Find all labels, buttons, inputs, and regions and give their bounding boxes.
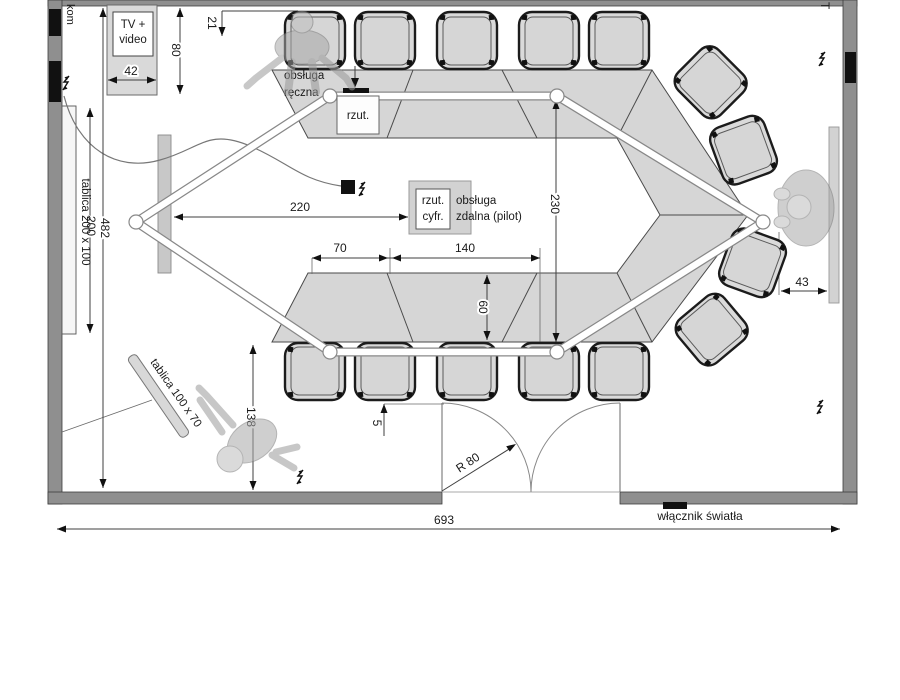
door-swing-arc bbox=[442, 403, 531, 492]
power-bolt-icon bbox=[359, 182, 365, 196]
obsluga-zdalna-line2: zdalna (pilot) bbox=[456, 211, 522, 223]
door-radius-label: R 80 bbox=[453, 450, 482, 476]
power-bolt-icon bbox=[817, 400, 823, 414]
dim-693-label: 693 bbox=[434, 513, 454, 527]
floor-junction-box bbox=[341, 180, 355, 194]
dim-230-label: 230 bbox=[548, 194, 562, 214]
door-swing-arc bbox=[531, 403, 620, 492]
wall-socket bbox=[49, 9, 61, 36]
dim-140-label: 140 bbox=[455, 241, 475, 255]
floor-plan-conference-room: TV + video tablica 100 x 70 R 80 21 bbox=[0, 0, 900, 700]
rzut-cyfr-line1: rzut. bbox=[422, 195, 444, 207]
dimension-80: 80 bbox=[169, 8, 184, 94]
wall-bottom-right bbox=[620, 492, 857, 504]
obsluga-zdalna-line1: obsługa bbox=[456, 195, 497, 207]
tv-video-label-line2: video bbox=[119, 34, 147, 46]
person-seated-right bbox=[774, 170, 834, 246]
dim-43-label: 43 bbox=[795, 275, 809, 289]
dim-42-label: 42 bbox=[124, 64, 138, 78]
chair bbox=[589, 12, 649, 69]
dimension-5: 5 bbox=[370, 404, 444, 436]
whiteboard-label: tablica 200 x 100 bbox=[79, 179, 91, 266]
flipchart-100x70: tablica 100 x 70 bbox=[62, 353, 204, 439]
wall-bottom-left bbox=[48, 492, 442, 504]
rzut-label: rzut. bbox=[347, 110, 369, 122]
whiteboard-200x100 bbox=[62, 106, 76, 334]
dim-5-label: 5 bbox=[370, 420, 384, 427]
top-right-label: T bbox=[818, 2, 832, 10]
dim-482-label: 482 bbox=[98, 218, 112, 238]
dim-220-label: 220 bbox=[290, 200, 310, 214]
wall-socket bbox=[49, 61, 61, 102]
chair bbox=[669, 41, 752, 124]
rzut-cyfr-line2: cyfr. bbox=[422, 211, 443, 223]
dimension-220: 220 bbox=[174, 200, 408, 221]
power-bolt-icon bbox=[819, 52, 825, 66]
dimension-138: 138 bbox=[244, 345, 258, 490]
chair bbox=[589, 343, 649, 400]
projector-digital: rzut. cyfr. obsługa zdalna (pilot) bbox=[409, 181, 522, 234]
dim-21-label: 21 bbox=[205, 16, 219, 30]
power-bolt-icon bbox=[63, 76, 69, 90]
dim-70-label: 70 bbox=[333, 241, 347, 255]
dim-80-label: 80 bbox=[169, 43, 183, 57]
dim-60-label: 60 bbox=[476, 300, 490, 314]
double-door: R 80 bbox=[442, 403, 620, 492]
wall-top bbox=[48, 0, 857, 6]
chair bbox=[437, 12, 497, 69]
person-bottom-left bbox=[199, 388, 297, 472]
wall-socket bbox=[845, 52, 856, 83]
kom-wall-label: kom bbox=[64, 4, 76, 25]
power-bolt-icon bbox=[297, 470, 303, 484]
light-switch-label: włącznik światła bbox=[656, 509, 743, 523]
projector-mount bbox=[343, 88, 369, 93]
floor-plan-drawing: TV + video tablica 100 x 70 R 80 21 bbox=[0, 0, 900, 700]
light-switch bbox=[663, 502, 687, 509]
tv-video-label-line1: TV + bbox=[121, 19, 146, 31]
chair bbox=[519, 12, 579, 69]
chair bbox=[355, 12, 415, 69]
